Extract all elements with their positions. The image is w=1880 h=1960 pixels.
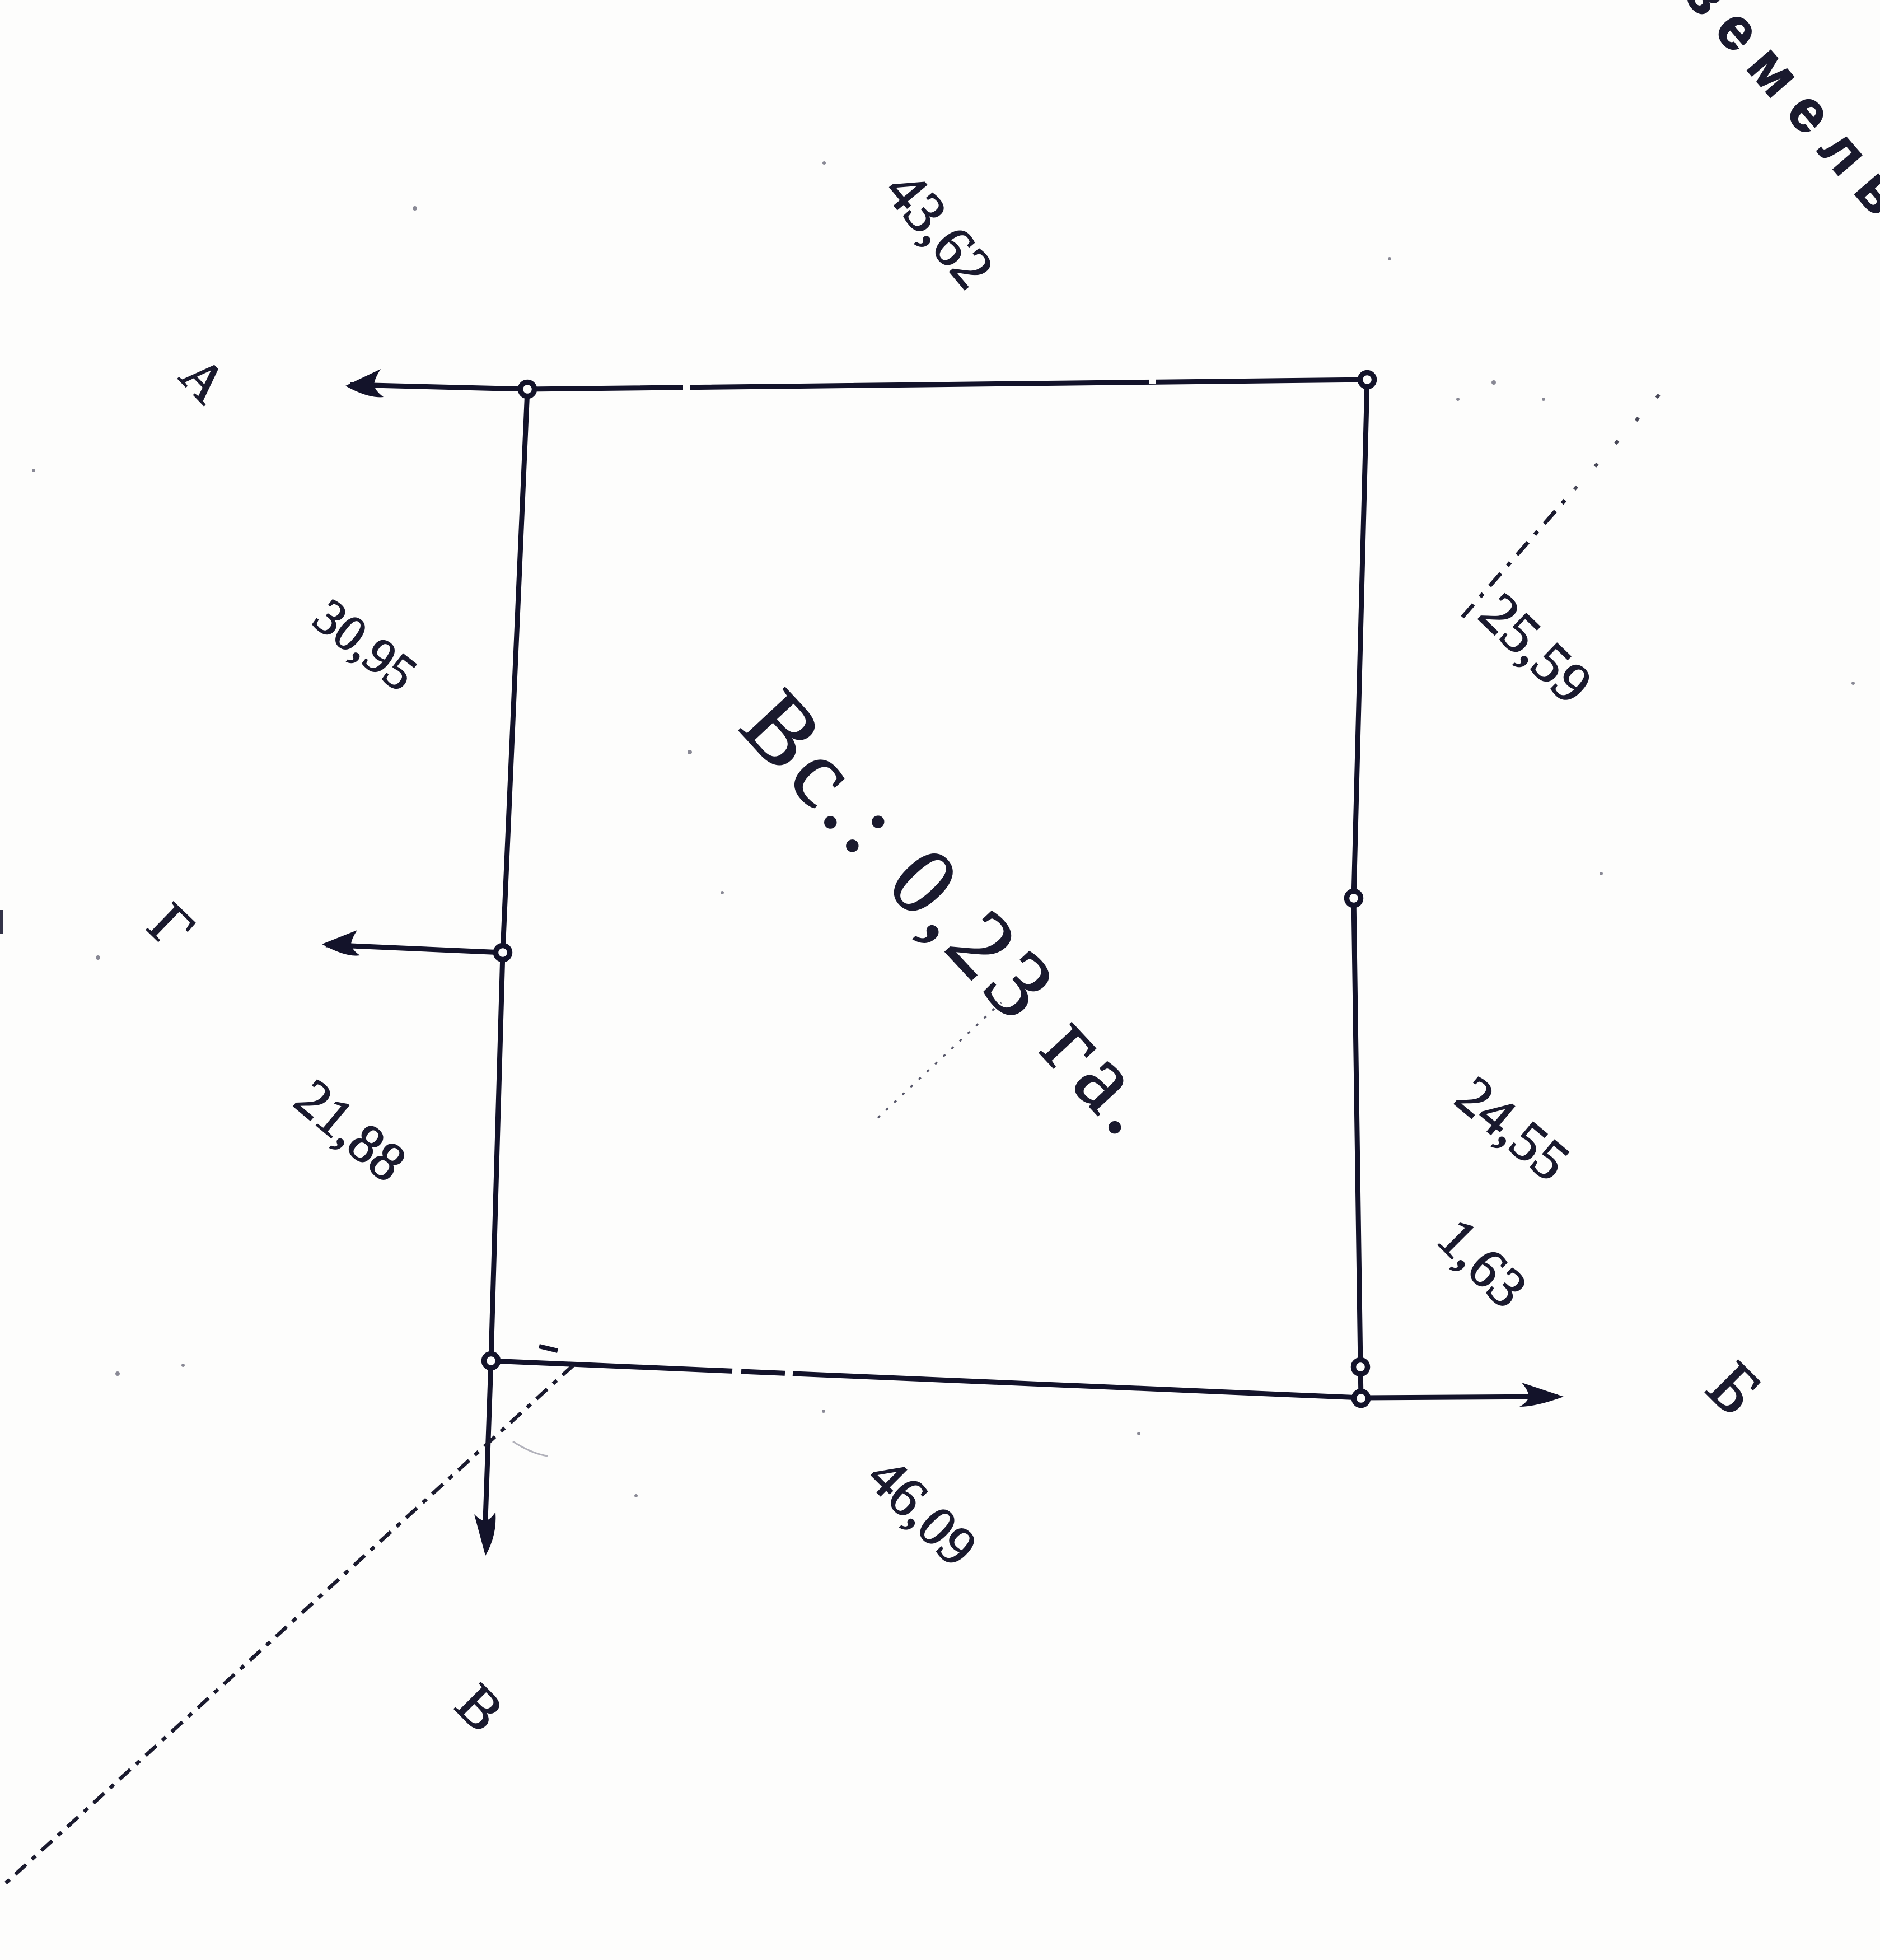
svg-text:Вс.: 0,23 га.: Вс.: 0,23 га.	[721, 670, 1186, 1159]
svg-text:25,59: 25,59	[1467, 581, 1604, 716]
svg-text:Б: Б	[1692, 1347, 1776, 1430]
svg-text:Г: Г	[136, 891, 206, 962]
svg-text:24,55: 24,55	[1444, 1064, 1581, 1193]
svg-text:43,62: 43,62	[873, 158, 1007, 300]
svg-text:30,95: 30,95	[303, 589, 427, 702]
svg-text:1,63: 1,63	[1426, 1206, 1539, 1319]
svg-text:А: А	[169, 346, 238, 414]
svg-text:46,09: 46,09	[856, 1445, 989, 1578]
svg-text:земельн: земельн	[1673, 0, 1880, 279]
svg-text:21,88: 21,88	[284, 1068, 417, 1193]
svg-text:В: В	[444, 1672, 516, 1744]
